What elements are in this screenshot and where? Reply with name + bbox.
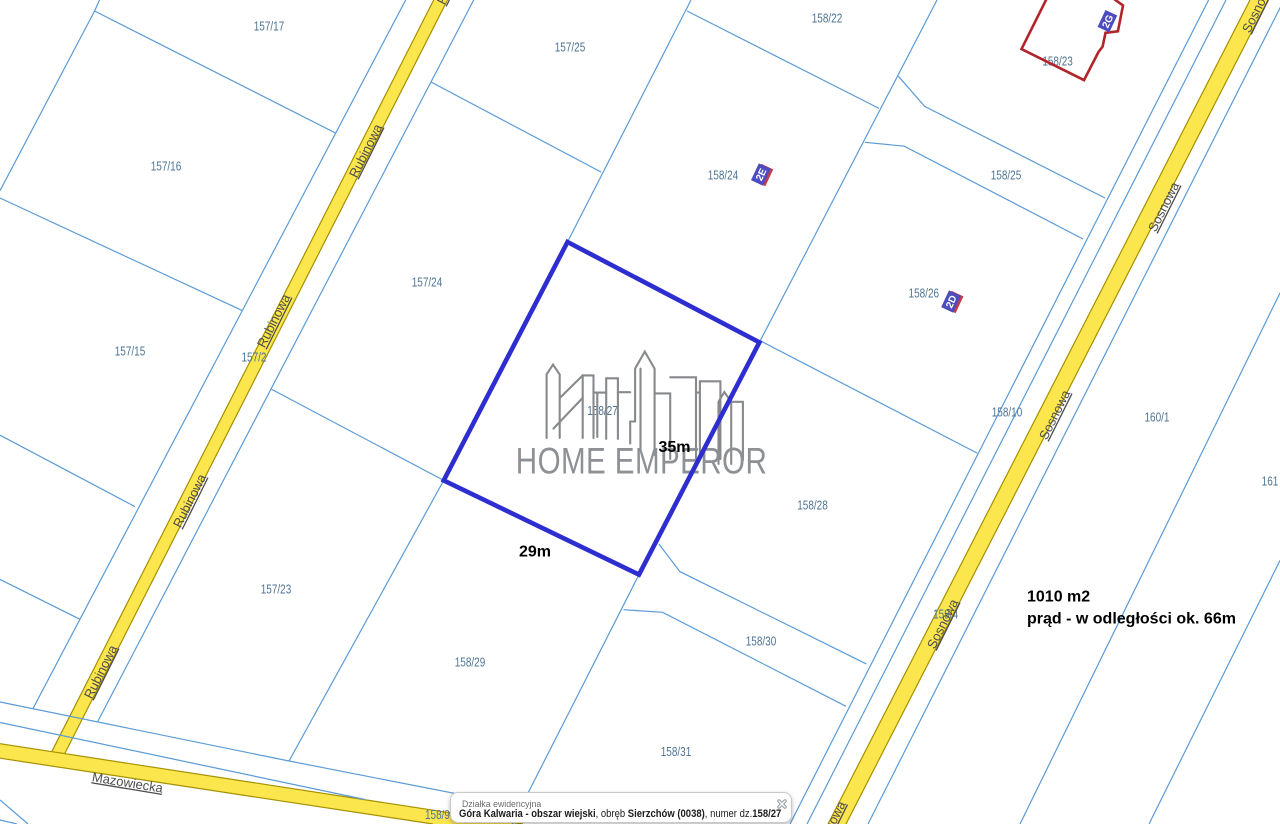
svg-text:157/15: 157/15 [115, 346, 146, 359]
svg-text:158/24: 158/24 [708, 170, 739, 183]
svg-text:160/1: 160/1 [1145, 412, 1170, 425]
svg-text:157/24: 157/24 [412, 277, 443, 290]
svg-text:158/28: 158/28 [797, 500, 828, 513]
svg-text:158/22: 158/22 [812, 13, 843, 26]
svg-text:158/10: 158/10 [992, 407, 1023, 420]
svg-text:157/23: 157/23 [261, 584, 292, 597]
svg-text:1010 m2: 1010 m2 [1027, 589, 1090, 606]
svg-text:161: 161 [1262, 476, 1279, 489]
svg-text:prąd - w odległości ok. 66m: prąd - w odległości ok. 66m [1027, 610, 1236, 627]
svg-text:29m: 29m [519, 544, 551, 561]
svg-text:158/29: 158/29 [455, 657, 486, 670]
svg-text:158/30: 158/30 [746, 636, 777, 649]
svg-text:158/27: 158/27 [587, 405, 618, 418]
svg-text:158/31: 158/31 [661, 746, 692, 759]
svg-text:157/2: 157/2 [242, 352, 267, 365]
svg-text:158/25: 158/25 [991, 170, 1022, 183]
svg-text:157/17: 157/17 [254, 21, 285, 34]
svg-text:35m: 35m [659, 439, 691, 456]
svg-text:157/25: 157/25 [555, 42, 586, 55]
svg-text:157/16: 157/16 [151, 161, 182, 174]
svg-text:HOME EMPEROR: HOME EMPEROR [516, 442, 767, 483]
svg-text:158/9: 158/9 [425, 809, 450, 822]
svg-text:158/26: 158/26 [909, 288, 940, 301]
